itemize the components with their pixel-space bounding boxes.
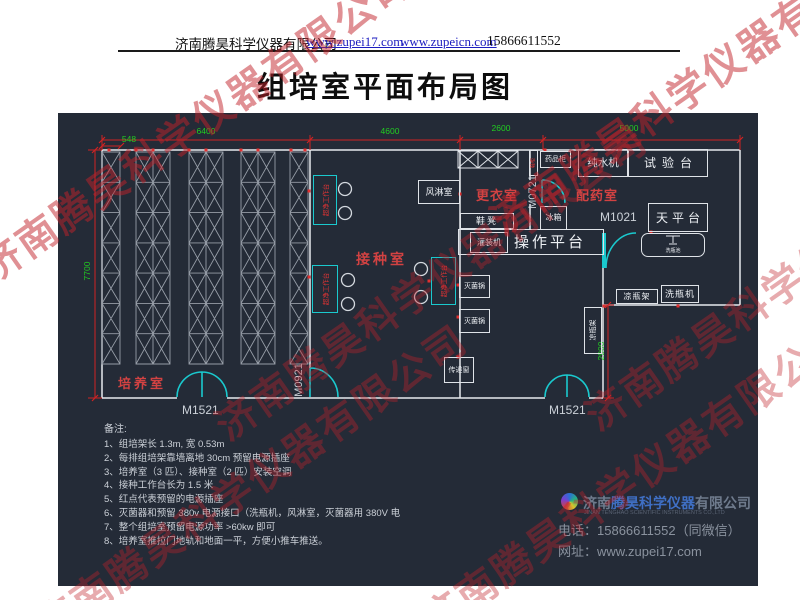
note-item: 8、培养室推拉门地轨和地面一平，方便小推车推送。 — [104, 535, 400, 549]
brand-prefix: 济南 — [583, 495, 611, 511]
notes-heading: 备注: — [104, 420, 400, 435]
air-shower: 风淋室 — [418, 180, 460, 204]
brand-suffix: 有限公司 — [695, 495, 751, 511]
dim-548: 548 — [122, 134, 136, 144]
note-item: 7、整个组培室预留电源功率 >60kw 即可 — [104, 521, 400, 535]
door-label-m1521-left: M1521 — [182, 403, 219, 417]
dim-2600: 2600 — [492, 123, 511, 133]
room-changing: 更衣室 — [476, 185, 518, 204]
filling-machine: 灌装机 — [470, 232, 508, 253]
test-bench: 试验台 — [628, 149, 708, 177]
clean-bench-2-label: 超净工作台 — [320, 273, 330, 306]
fridge: 冰箱 — [540, 206, 567, 230]
dim-7700: 7700 — [82, 262, 92, 281]
clean-bench-1-label: 超净工作台 — [320, 184, 330, 217]
footer-brand-english: JINAN TENGHAO SCIENTIFIC INSTRUMENTS CO.… — [584, 510, 725, 516]
header-link-zupeicn[interactable]: www.zupeicn.com — [400, 34, 497, 50]
room-prep: 配药室 — [576, 185, 618, 204]
door-label-m0921: M0921 — [293, 363, 305, 397]
page: 济南腾昊科学仪器有限公司 www.zupei17.com www.zupeicn… — [0, 0, 800, 600]
balance-table: 天平台 — [648, 203, 708, 232]
bottle-rack-horizontal: 凉瓶架 — [616, 289, 658, 304]
bottle-rack-vertical-label: 凉瓶架 — [588, 320, 598, 341]
shoe-cabinet-label: 鞋柜 — [530, 158, 537, 168]
footer-website[interactable]: 网址：www.zupei17.com — [558, 541, 702, 560]
dim-6400: 6400 — [197, 126, 216, 136]
header-phone: 15866611552 — [487, 33, 561, 49]
notes-block: 备注: 1、组培架长 1.3m, 宽 0.53m 2、每排组培架靠墙离地 30c… — [104, 420, 400, 548]
header-link-zupei17[interactable]: www.zupei17.com — [306, 34, 403, 50]
brand-name: 腾昊科学仪器 — [611, 495, 695, 511]
sterilizer-2: 灭菌锅 — [459, 309, 490, 333]
dim-4600: 4600 — [381, 126, 400, 136]
room-inoculation: 接种室 — [356, 249, 407, 269]
washing-sink: 洗瓶池 — [641, 233, 705, 257]
header-divider — [118, 50, 680, 52]
shoe-bench: 鞋凳 — [460, 213, 514, 229]
door-label-m1521-right: M1521 — [549, 403, 586, 417]
bottle-washer: 洗瓶机 — [661, 285, 699, 303]
page-title: 组培室平面布局图 — [170, 64, 600, 106]
transfer-window: 传递窗 — [444, 357, 474, 383]
dim-5000: 5000 — [620, 123, 639, 133]
door-label-m1021: M1021 — [600, 210, 637, 224]
note-item: 1、组培架长 1.3m, 宽 0.53m — [104, 438, 400, 452]
room-culture: 培养室 — [118, 373, 166, 392]
sterilizer-1: 灭菌锅 — [459, 275, 490, 298]
note-item: 3、培养室（3 匹）、接种室（2 匹）安装空调 — [104, 466, 400, 480]
medicine-cabinet: 药品柜 — [540, 151, 571, 168]
door-label-m0721: M0721 — [527, 175, 539, 209]
footer-phone: 电话：15866611552（同微信） — [558, 520, 741, 539]
note-item: 2、每排组培架靠墙离地 30cm 预留电源插座 — [104, 452, 400, 466]
note-item: 6、灭菌器和预留 380v 电源接口（洗瓶机，风淋室，灭菌器用 380V 电 — [104, 507, 400, 521]
company-logo — [561, 493, 578, 510]
water-purifier: 纯水机 — [578, 149, 628, 177]
clean-bench-3-label: 超净工作台 — [438, 265, 448, 298]
note-item: 4、接种工作台长为 1.5 米 — [104, 479, 400, 493]
note-item: 5、红点代表预留的电源插座 — [104, 493, 400, 507]
